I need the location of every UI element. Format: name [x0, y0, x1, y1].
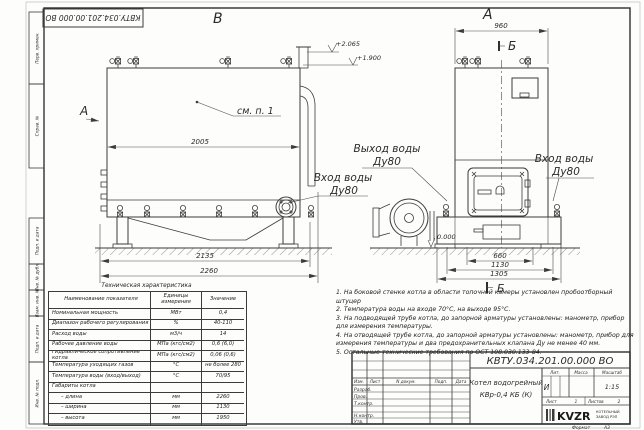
table-cell-unit: м3/ч — [151, 330, 202, 341]
table-cell-name: – длина — [49, 393, 151, 404]
inlet-right-dn: Ду80 — [551, 166, 580, 178]
tb-doc-name-line2: КВр-0,4 КБ (К) — [480, 391, 533, 399]
frame-label-inv-dubl: Инв. № дубл. — [35, 263, 40, 292]
table-cell-unit — [151, 383, 202, 394]
table-cell-name: Расход воды — [49, 330, 151, 341]
table-cell-name: Номинальная мощность — [49, 309, 151, 320]
table-cell-name: Диапазон рабочего регулирования — [49, 320, 151, 331]
outlet-valve-icon — [443, 204, 448, 216]
outlet-label: Выход воды — [354, 143, 421, 155]
title-block: Изм. Лист N докум. Подп. Дата Разраб. Пр… — [352, 352, 630, 430]
safety-valve-icon — [520, 57, 531, 68]
table-cell-unit: °С — [151, 372, 202, 383]
tb-sheets-label: Листов — [587, 399, 604, 404]
tb-lit-label: Лит. — [549, 370, 560, 375]
safety-valve-icon — [457, 57, 468, 68]
callouts: см. п. 1 Вход воды Ду80 Выход воды Ду80 … — [196, 101, 594, 203]
flue-duct — [300, 86, 315, 186]
note-item: 3. На подводящей трубе котла, до запорно… — [336, 315, 634, 332]
table-cell-value: 2260 — [202, 393, 244, 404]
format-value: А3 — [603, 425, 610, 430]
table-cell-value — [202, 383, 244, 394]
blower-fan — [373, 199, 434, 246]
left-view-boiler-side — [95, 47, 332, 255]
dim-960: 960 — [494, 22, 508, 30]
table-cell-unit: мм — [151, 404, 202, 415]
frame-label-perv-primen: Перв. примен. — [35, 32, 40, 63]
table-header-name: Наименование показателя — [49, 292, 151, 309]
table-cell-name: Габариты котла — [49, 383, 151, 394]
technical-characteristics-table: Наименование показателя Единицы измерени… — [48, 291, 247, 426]
table-cell-value: 40-110 — [202, 320, 244, 331]
logo-text: KVZR — [557, 410, 591, 423]
table-cell-unit: МПа (кгс/см2) — [151, 341, 202, 352]
frame-label-podp-data-1: Подп. и дата — [35, 226, 40, 255]
support-brace — [128, 218, 283, 240]
section-b-mark: Б — [508, 39, 516, 53]
tb-col-sign: Подп. — [435, 379, 448, 384]
dim-1130: 1130 — [491, 261, 509, 269]
side-valve-icon — [308, 205, 313, 217]
door-latch — [496, 186, 504, 194]
furnace-door — [468, 168, 530, 216]
kvzr-logo: KVZR КОТЕЛЬНЫЙ ЗАВОД РЭП — [546, 409, 620, 423]
tb-sheet-label: Лист — [545, 399, 557, 404]
see-note-label: см. п. 1 — [237, 106, 274, 117]
drain-valve-icon — [252, 205, 257, 217]
drain-valve-icon — [216, 205, 221, 217]
tb-doc-name-line1: Котел водогрейный — [469, 379, 543, 387]
view-a-label: А — [482, 7, 493, 23]
safety-valve-icon — [281, 57, 292, 68]
note-item: 5. Остальные технические требования по О… — [336, 349, 634, 358]
view-arrow-a-label: А — [79, 104, 88, 118]
dim-2135: 2135 — [196, 252, 214, 260]
tb-col-date: Дата — [455, 379, 467, 384]
table-cell-name: Температура уходящих газов — [49, 362, 151, 373]
inlet-left-dn: Ду80 — [329, 185, 358, 197]
table-cell-unit: мм — [151, 414, 202, 425]
view-b-label: В — [213, 11, 223, 27]
table-cell-unit: МПа (кгс/см2) — [151, 351, 202, 362]
outlet-dn: Ду80 — [372, 156, 401, 168]
tb-row-prov: Пров. — [354, 394, 367, 400]
frame-label-vzam-inv: Взам. инв. № — [35, 288, 40, 317]
note-item: 2. Температура воды на входе 70°С, на вы… — [336, 306, 634, 315]
tb-scale-label: Масштаб — [602, 370, 622, 375]
tb-col-list: Лист — [369, 379, 381, 384]
tb-row-utv: Утв. — [354, 419, 363, 425]
table-cell-value: не более 280 — [202, 362, 244, 373]
table-cell-unit: % — [151, 320, 202, 331]
table-cell-value: 14 — [202, 330, 244, 341]
table-cell-unit: МВт — [151, 309, 202, 320]
tb-sheet-num: 1 — [575, 399, 578, 404]
inlet-flange — [276, 197, 296, 217]
logo-sub2: ЗАВОД РЭП — [596, 415, 618, 419]
tb-scale-value: 1:15 — [605, 383, 620, 391]
table-cell-value: 1950 — [202, 414, 244, 425]
safety-valve-icon — [110, 57, 121, 68]
drain-valve-icon — [180, 205, 185, 217]
tb-row-nkontr: Н.контр. — [354, 413, 374, 419]
drain-valve-icon — [117, 205, 122, 217]
table-cell-name: Гидравлическое сопротивление котла — [49, 351, 151, 362]
tb-mass-label: Масса — [574, 370, 588, 375]
table-cell-name: Рабочее давление воды — [49, 341, 151, 352]
dim-2260: 2260 — [200, 267, 218, 275]
tb-col-izm: Изм. — [354, 379, 364, 384]
elevation-zero: 0.000 — [437, 233, 456, 241]
support-leg — [283, 217, 294, 244]
safety-valve-icon — [128, 57, 139, 68]
inlet-left-label: Вход воды — [314, 172, 373, 184]
table-cell-value: 0,4 — [202, 309, 244, 320]
tb-sheets-num: 2 — [618, 399, 621, 404]
door-handle — [478, 190, 491, 194]
table-cell-unit: °С — [151, 362, 202, 373]
table-title: Техническая характеристика — [48, 283, 245, 289]
elevation-1900: +1.900 — [357, 54, 381, 62]
top-stamp-code: КВТУ.034.201.00.000 ВО — [45, 13, 140, 22]
inlet-right-label: Вход воды — [535, 153, 594, 165]
support-leg — [117, 217, 128, 244]
dim-1305: 1305 — [490, 270, 508, 278]
frame-label-sprav: Справ. № — [35, 115, 40, 136]
frame-label-podp-data-2: Подп. и дата — [35, 324, 40, 353]
logo-sub1: КОТЕЛЬНЫЙ — [596, 409, 620, 414]
tb-row-tkontr: Т.контр. — [354, 401, 374, 407]
dim-2005: 2005 — [191, 138, 209, 146]
tb-row-razrab: Разраб. — [354, 387, 372, 393]
table-cell-unit: мм — [151, 393, 202, 404]
table-cell-name: – ширина — [49, 404, 151, 415]
inlet-valve-icon — [554, 204, 559, 216]
drain-valve-icon — [144, 205, 149, 217]
frame-label-inv-podl: Инв. № подл. — [35, 379, 40, 408]
dim-660: 660 — [493, 252, 507, 260]
table-cell-value: 0,6 (6,0) — [202, 341, 244, 352]
note-item: 4. На отводящей трубе котла, до запорной… — [336, 332, 634, 349]
table-cell-name: – высота — [49, 414, 151, 425]
table-cell-value: 0,06 (0,6) — [202, 351, 244, 362]
safety-valve-icon — [470, 57, 481, 68]
table-header-unit: Единицы измерения — [151, 292, 202, 309]
table-cell-name: Температура воды (вход/выход) — [49, 372, 151, 383]
ground-hatch — [370, 249, 580, 256]
table-cell-value: 1130 — [202, 404, 244, 415]
elevation-2065: +2.065 — [336, 40, 360, 48]
control-panel-box — [512, 78, 538, 98]
tb-lit-value: И — [544, 383, 550, 392]
table-header-value: Значение — [202, 292, 244, 309]
table-cell-value: 70/95 — [202, 372, 244, 383]
safety-valve-icon — [220, 57, 231, 68]
format-label: Формат — [572, 425, 591, 430]
boiler-drawing-sheet: Перв. примен. Справ. № Подп. и дата Инв.… — [0, 0, 644, 430]
tb-drawing-code: КВТУ.034.201.00.000 ВО — [487, 356, 614, 367]
note-item: 1. На боковой стенке котла в области топ… — [336, 289, 634, 306]
tb-col-doc: N докум. — [396, 379, 415, 384]
technical-notes: 1. На боковой стенке котла в области топ… — [336, 289, 634, 357]
